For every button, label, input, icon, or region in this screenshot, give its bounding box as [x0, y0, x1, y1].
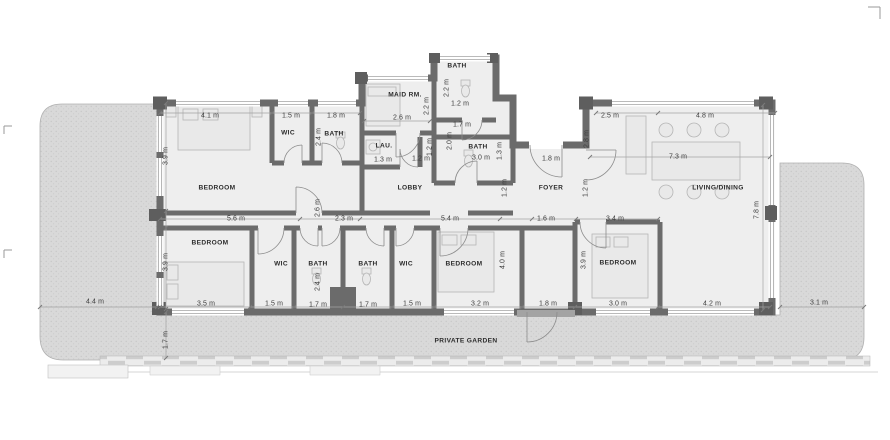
floor-plan-drawing — [0, 0, 890, 440]
window — [769, 115, 776, 205]
window — [612, 100, 754, 107]
porch-threshold — [517, 310, 575, 317]
toilet — [461, 80, 470, 97]
window — [278, 100, 308, 107]
dining-table — [652, 142, 740, 180]
dining-chair — [659, 123, 673, 137]
window — [444, 309, 514, 316]
window — [368, 75, 428, 82]
window — [596, 309, 650, 316]
plot-boundary-band — [48, 356, 878, 378]
dining-chair — [687, 185, 701, 199]
window — [157, 278, 164, 306]
window — [668, 309, 754, 316]
dining-chair — [715, 185, 729, 199]
floor-plan-canvas: BEDROOMWICBATHMAID RM.BATHLAU.LOBBYBATHF… — [0, 0, 890, 440]
dining-chair — [687, 123, 701, 137]
window — [172, 309, 244, 316]
window — [769, 222, 776, 298]
paver-step — [150, 366, 220, 375]
dining-chair — [659, 185, 673, 199]
window — [440, 55, 490, 62]
paver-step — [310, 366, 380, 375]
window — [157, 116, 164, 152]
paver-step — [48, 365, 128, 378]
window — [157, 158, 164, 196]
window — [318, 100, 356, 107]
toilet — [362, 268, 371, 285]
washer — [366, 140, 380, 154]
dining-chair — [715, 123, 729, 137]
kitchen-counter — [626, 116, 646, 174]
window — [176, 100, 260, 107]
toilet — [336, 132, 345, 149]
window — [157, 236, 164, 272]
toilet — [312, 268, 321, 285]
service-shaft — [330, 287, 356, 312]
